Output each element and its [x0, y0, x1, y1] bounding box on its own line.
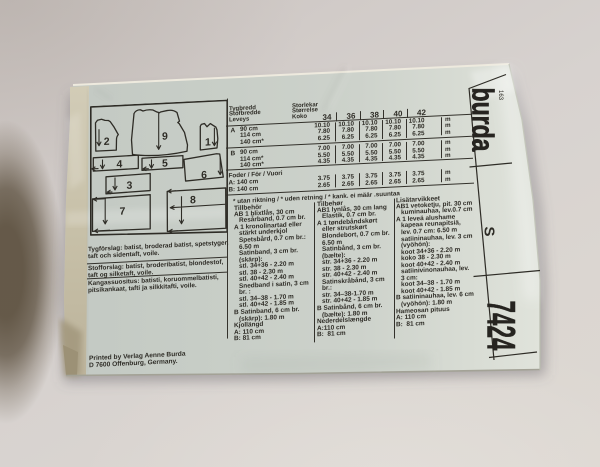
- svg-text:163: 163: [497, 90, 503, 101]
- svg-text:S: S: [481, 227, 498, 237]
- svg-text:7424: 7424: [479, 301, 523, 351]
- svg-text:burda: burda: [466, 88, 501, 153]
